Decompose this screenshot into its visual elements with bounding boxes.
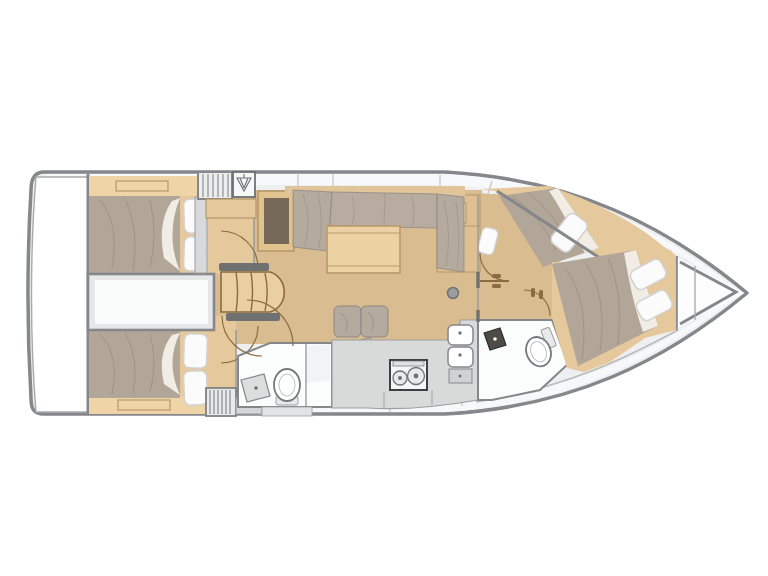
entry-cabinet [206,199,256,218]
engine-compartment [88,274,214,330]
settee-cushion-back [330,192,437,228]
settee-cushion-right [437,194,464,272]
toilet [274,369,300,405]
cabinet-inset [264,198,289,244]
pillow [183,334,207,369]
partition [195,197,207,273]
step-ledge [219,263,269,271]
bench-cushion [334,306,361,337]
hanging-locker [233,172,255,197]
pillow [183,371,207,406]
bench-cushion [361,306,388,337]
salon-bench [334,306,388,337]
engine-hatch [95,280,208,324]
shelf [118,400,170,410]
mast-post [448,288,459,299]
transom-platform [32,174,89,414]
shelf [116,181,168,191]
platform-shape [32,177,89,412]
hanging-locker-port [206,388,236,416]
companionway-hatch [198,172,232,199]
galley-sink [448,325,473,383]
stove [390,360,427,390]
shower-pan [307,344,330,383]
boat-layout-plan [0,0,768,576]
settee-cushion-left [293,190,332,251]
salon-table [327,226,400,273]
nav-cabinet [258,191,294,251]
step-ledge [226,313,280,321]
layout-drawing [0,0,768,576]
head-locker [262,407,312,416]
